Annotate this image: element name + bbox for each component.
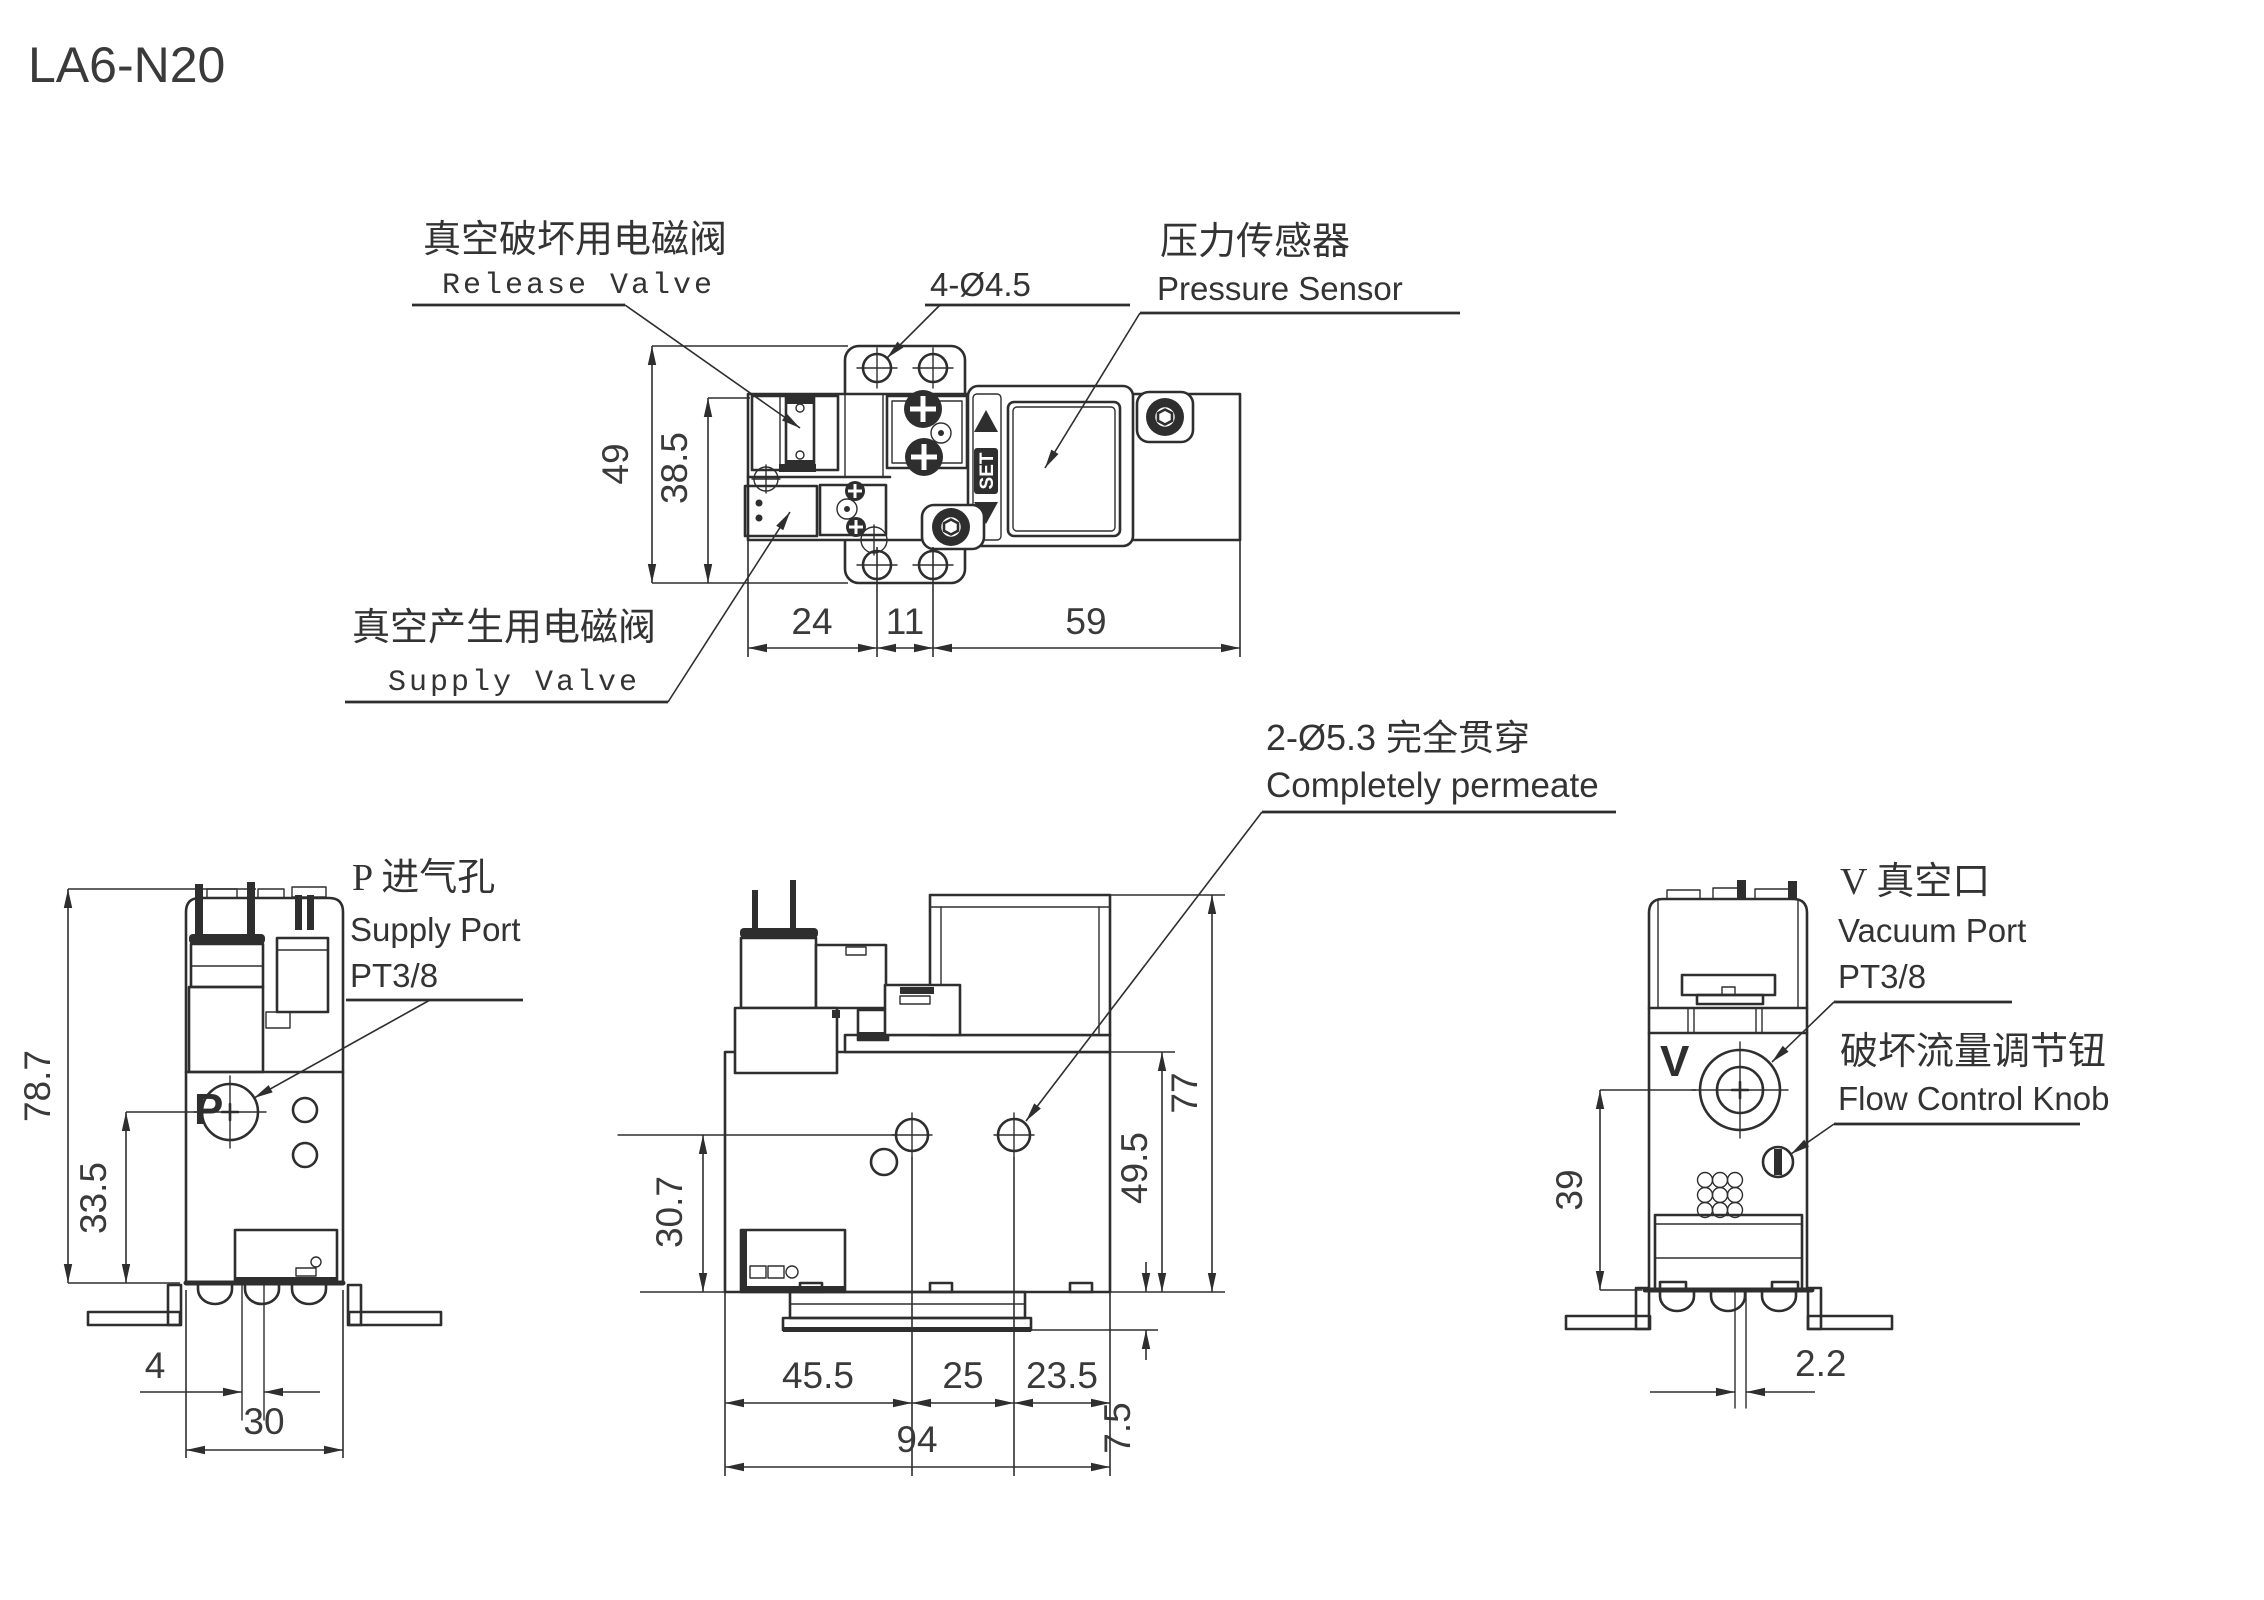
dim-text: 49.5: [1114, 1132, 1155, 1204]
dim-text: 30: [243, 1401, 284, 1442]
release-valve-label-en: Release Valve: [442, 269, 715, 303]
bracket-foot: [88, 1312, 180, 1325]
dim-text: 77: [1164, 1072, 1205, 1113]
port-fitting: [292, 1283, 326, 1304]
base-plate: [783, 1292, 1031, 1332]
pressure-sensor: SET: [968, 386, 1133, 546]
left-side-view: P 78.7 33.5: [17, 857, 523, 1458]
bracket-foot: [349, 1312, 441, 1325]
dim-text: 59: [1065, 601, 1106, 642]
front-view: 30.7 49.5 77 7.5 45.5 25: [618, 717, 1616, 1476]
solenoid-coil-cap: [189, 934, 265, 944]
callout-supply-valve: 真空产生用电磁阀 Supply Valve: [345, 512, 790, 702]
supply-port-label-cn: P 进气孔: [352, 857, 495, 899]
supply-port-thread: PT3/8: [350, 957, 438, 994]
dimension-4: 4: [140, 1345, 320, 1392]
dim-text: 7.5: [1097, 1402, 1138, 1453]
solenoid-pin: [1788, 881, 1797, 898]
dimension-30_7: 30.7: [640, 1135, 725, 1292]
screw-hex-socket: [1137, 392, 1193, 442]
dim-text: 94: [896, 1419, 937, 1460]
technical-drawing: LA6-N20: [0, 0, 2264, 1600]
callout-through-holes: 2-Ø5.3 完全贯穿 Completely permeate: [1026, 717, 1616, 1121]
dimension-77: 77: [1110, 895, 1225, 1292]
bracket-foot: [1566, 1316, 1650, 1329]
set-button-label: SET: [977, 452, 998, 489]
port-letter: V: [1660, 1037, 1690, 1086]
dim-text: 30.7: [649, 1176, 690, 1248]
top-view: SET 49: [345, 219, 1460, 702]
port-fitting: [1660, 1290, 1694, 1311]
supply-valve-label-cn: 真空产生用电磁阀: [352, 607, 656, 649]
dim-text: 11: [886, 601, 924, 642]
drawing-page: { "title": "LA6-N20", "views": { "top": …: [0, 0, 2264, 1600]
dim-text: 2.2: [1795, 1343, 1846, 1384]
body-outline: [1649, 899, 1807, 1290]
callout-holes: 4-Ø4.5: [887, 266, 1130, 358]
solenoid-pin: [195, 884, 203, 936]
solenoid-pin: [752, 890, 758, 930]
pressure-sensor-label-cn: 压力传感器: [1160, 221, 1350, 263]
callout-flow-control-knob: 破坏流量调节钮 Flow Control Knob: [1791, 1031, 2109, 1154]
dimension-33_5: 33.5: [73, 1112, 198, 1283]
dim-text: 78.7: [17, 1050, 58, 1122]
dim-text: 4: [145, 1345, 166, 1386]
pressure-sensor-label-en: Pressure Sensor: [1157, 270, 1403, 307]
dimension-bottom-row: 24 11 59: [748, 540, 1240, 657]
flow-knob-label-en: Flow Control Knob: [1838, 1080, 2109, 1117]
through-holes-label-cn: 2-Ø5.3 完全贯穿: [1266, 717, 1530, 758]
supply-port-label-en: Supply Port: [350, 911, 521, 948]
through-holes-label-en: Completely permeate: [1266, 766, 1599, 805]
holes-label: 4-Ø4.5: [930, 266, 1031, 303]
dim-text: 49: [595, 443, 636, 484]
vacuum-port-label-cn: V 真空口: [1840, 861, 1990, 903]
dim-text: 24: [791, 601, 832, 642]
port-fitting: [245, 1283, 279, 1304]
solenoid-pin: [790, 880, 796, 930]
vacuum-port-label-en: Vacuum Port: [1838, 912, 2026, 949]
dim-text: 39: [1549, 1169, 1590, 1210]
port-fitting: [1762, 1290, 1796, 1311]
solenoid-pin: [307, 895, 314, 930]
dimension-2_2: 2.2: [1650, 1343, 1846, 1392]
port-fitting: [198, 1283, 232, 1304]
dim-text: 23.5: [1026, 1355, 1098, 1396]
page-title: LA6-N20: [28, 37, 225, 93]
dimension-38_5: 38.5: [654, 398, 750, 583]
dim-text: 25: [942, 1355, 983, 1396]
body-outline: [725, 1052, 1110, 1292]
release-valve-label-cn: 真空破坏用电磁阀: [423, 219, 727, 261]
vacuum-port-thread: PT3/8: [1838, 958, 1926, 995]
dim-text: 45.5: [782, 1355, 854, 1396]
supply-valve-label-en: Supply Valve: [388, 666, 640, 700]
solenoid-pin: [295, 895, 302, 930]
dim-text: 33.5: [73, 1162, 114, 1234]
right-side-view: V: [1549, 861, 2109, 1408]
solenoid-pin: [247, 882, 255, 936]
screw-hex-socket: [922, 505, 984, 549]
flow-knob-label-cn: 破坏流量调节钮: [1840, 1031, 2106, 1073]
dim-text: 38.5: [654, 432, 695, 504]
solenoid-pin: [1737, 880, 1746, 898]
callout-release-valve: 真空破坏用电磁阀 Release Valve: [412, 219, 800, 428]
port-fitting: [1711, 1290, 1745, 1311]
